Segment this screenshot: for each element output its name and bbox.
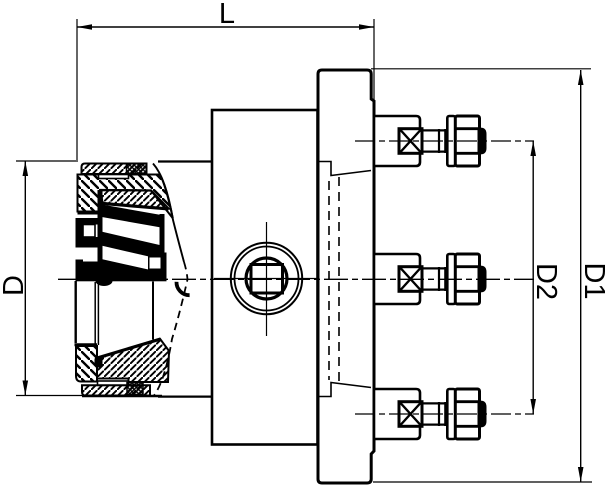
svg-text:D1: D1 (578, 262, 606, 299)
svg-text:L: L (219, 0, 235, 30)
svg-text:D: D (0, 275, 30, 296)
svg-text:D2: D2 (530, 263, 562, 300)
